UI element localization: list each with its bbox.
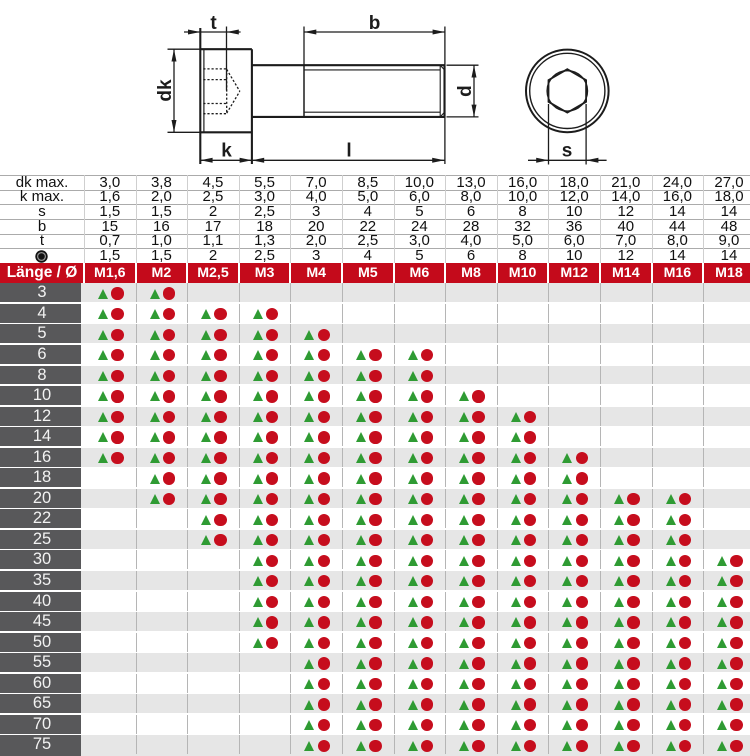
svg-text:l: l (346, 141, 351, 162)
svg-text:t: t (210, 13, 217, 34)
svg-text:b: b (369, 13, 381, 34)
svg-text:d: d (455, 85, 476, 97)
svg-text:s: s (562, 141, 573, 162)
svg-text:dk: dk (155, 79, 176, 102)
svg-text:k: k (221, 141, 232, 162)
